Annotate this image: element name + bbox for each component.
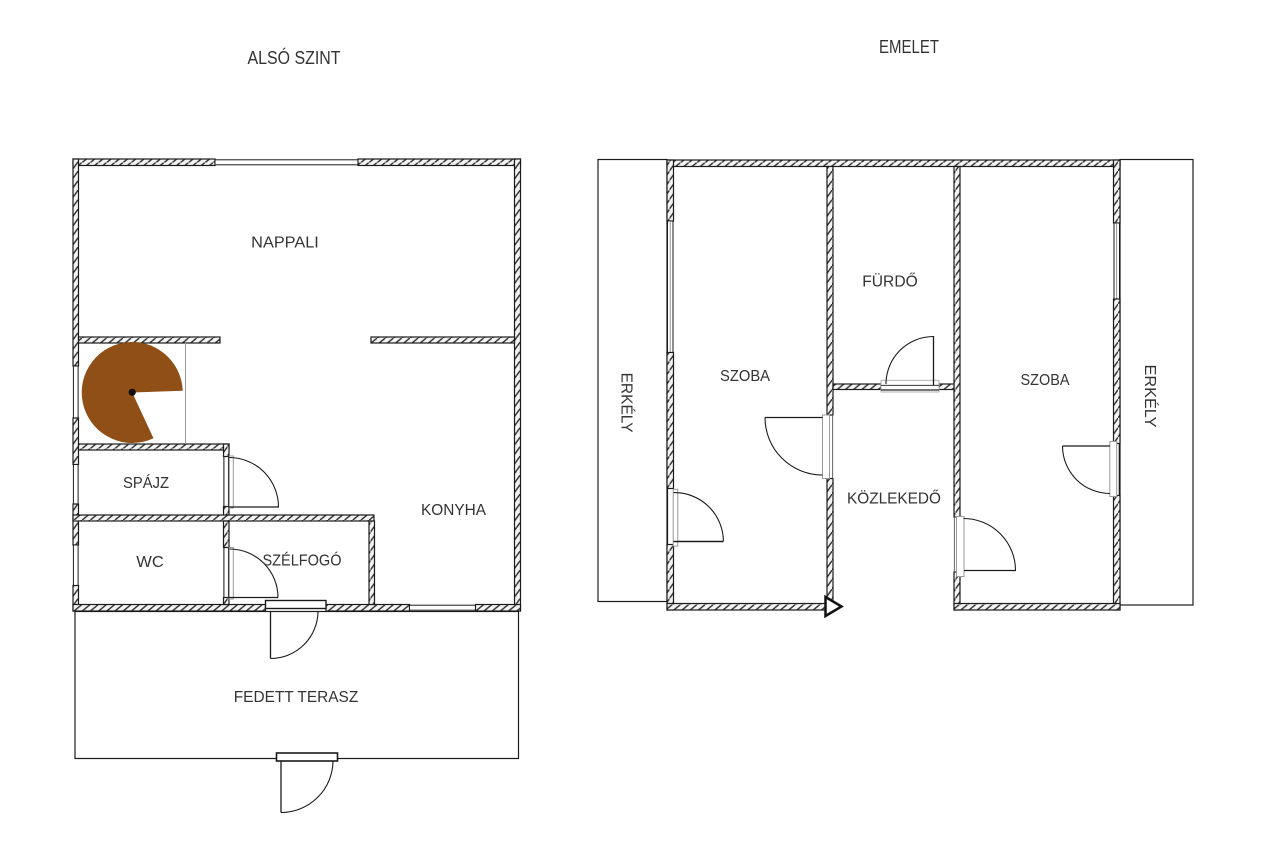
- svg-text:KONYHA: KONYHA: [421, 502, 486, 519]
- svg-text:FÜRDŐ: FÜRDŐ: [862, 272, 918, 291]
- svg-text:ALSÓ SZINT: ALSÓ SZINT: [248, 47, 341, 68]
- svg-text:FEDETT TERASZ: FEDETT TERASZ: [234, 689, 359, 706]
- svg-text:NAPPALI: NAPPALI: [251, 235, 319, 252]
- svg-text:SZÉLFOGÓ: SZÉLFOGÓ: [263, 551, 342, 570]
- svg-text:SZOBA: SZOBA: [1021, 372, 1070, 389]
- svg-text:WC: WC: [136, 554, 164, 571]
- svg-text:ERKÉLY: ERKÉLY: [1141, 365, 1160, 428]
- svg-text:EMELET: EMELET: [879, 37, 939, 57]
- svg-text:KÖZLEKEDŐ: KÖZLEKEDŐ: [847, 489, 941, 508]
- svg-text:SPÁJZ: SPÁJZ: [123, 473, 169, 492]
- svg-text:SZOBA: SZOBA: [720, 368, 770, 385]
- svg-text:ERKÉLY: ERKÉLY: [618, 373, 637, 433]
